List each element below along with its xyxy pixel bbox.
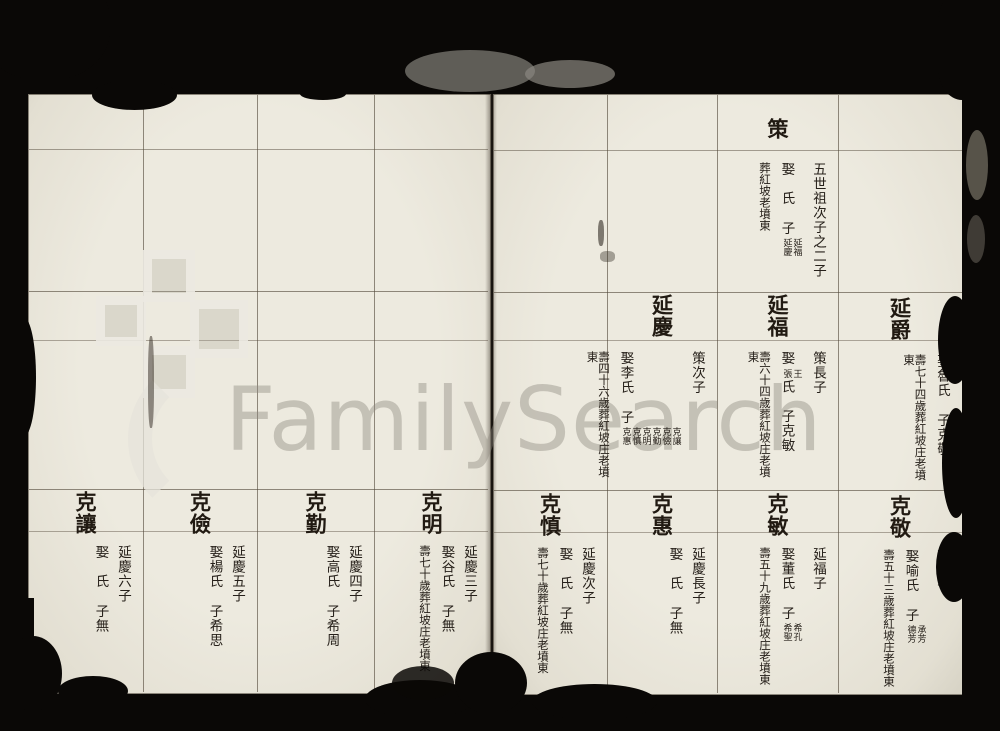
burial-text: 壽五十九歲葬紅坡庄老墳東	[759, 547, 771, 688]
marriage-sons-text: 娶 氏子延福延慶	[779, 162, 802, 289]
edge-blot	[938, 296, 972, 384]
marriage-sons-text: 娶喻氏子承芳德芳	[903, 549, 926, 688]
sons-note: 延福延慶	[782, 238, 802, 258]
marriage-head: 娶	[779, 351, 795, 366]
entry-kehui-name: 克惠	[607, 493, 717, 537]
marriage-head: 娶 氏	[557, 547, 573, 591]
genealogy-book-scan: FamilySearch 策 五世祖次子之二子 娶 氏子延福延慶 葬紅坡老墳東 …	[0, 0, 1000, 731]
sons-note: 克讓克儉克勤克明克慎克惠	[621, 427, 681, 447]
marriage-tail: 氏	[779, 380, 795, 395]
marriage-sons-text: 娶董氏子希孔希聖	[779, 547, 802, 688]
marriage-head: 娶李氏	[618, 351, 634, 395]
ink-blot	[392, 666, 454, 700]
marriage-head: 娶 氏	[93, 545, 109, 589]
burial-text: 壽七十歲葬紅坡庄老墳東	[537, 547, 549, 688]
burial-text: 葬紅坡老墳東	[759, 162, 771, 289]
grid-line	[494, 150, 962, 151]
entry-keshen-name: 克慎	[493, 493, 607, 537]
entry-yanqing-name: 延慶	[607, 293, 717, 339]
entry-yanqing-detail: 策次子 娶李氏子克讓克儉克勤克明克慎克惠 壽四十六歲葬紅坡庄老墳東	[607, 341, 717, 488]
entry-ce-name: 策	[717, 108, 838, 150]
fold-mark	[600, 251, 615, 262]
marriage-head: 娶董氏	[779, 547, 795, 591]
edge-blot	[942, 408, 970, 518]
marriage-head: 娶 氏	[667, 547, 683, 591]
marriage-sons-text: 娶王張氏子克敏	[779, 351, 802, 486]
marriage-sons-text: 娶谷氏子無	[439, 545, 453, 688]
sons-label: 子希思	[207, 604, 223, 648]
entry-yanfu-detail: 策長子 娶王張氏子克敏 壽六十四歲葬紅坡庄老墳東	[717, 341, 838, 488]
edge-blot	[936, 532, 972, 602]
sons-label: 子	[903, 608, 919, 623]
fold-mark	[598, 220, 604, 246]
marriage-sons-text: 娶 氏子無	[667, 547, 681, 688]
gutter-blot	[455, 652, 527, 714]
marriage-head: 娶高氏	[324, 545, 340, 589]
burial-text: 壽五十三歲葬紅坡庄老墳東	[883, 549, 895, 688]
entry-kejian-detail: 延慶五子 娶楊氏子希思	[143, 535, 257, 690]
entry-kerang-name: 克讓	[28, 491, 143, 535]
grid-line	[29, 340, 488, 341]
entry-keqin-name: 克勤	[257, 491, 374, 535]
sons-label: 子	[779, 221, 795, 236]
grid-line	[29, 149, 488, 150]
entry-ce-detail: 五世祖次子之二子 娶 氏子延福延慶 葬紅坡老墳東	[717, 152, 838, 291]
grid-line	[29, 291, 488, 292]
sons-note: 希孔希聖	[782, 623, 802, 643]
entry-kehui-detail: 延慶長子 娶 氏子無	[607, 537, 717, 690]
torn-edge	[300, 88, 346, 100]
spine-mark	[967, 215, 985, 263]
marriage-sons-text: 娶高氏子希周	[324, 545, 338, 688]
burial-text: 壽六十四歲葬紅坡庄老墳東	[747, 351, 770, 486]
torn-edge	[58, 676, 128, 706]
sons-label: 子	[779, 606, 795, 621]
corner-shadow	[0, 0, 110, 80]
sons-note: 承芳德芳	[906, 625, 926, 645]
sons-label: 子	[618, 410, 634, 425]
entry-keqin-detail: 延慶四子 娶高氏子希周	[257, 535, 374, 690]
marriage-head: 娶 氏	[779, 162, 795, 206]
edge-blot	[12, 318, 36, 436]
entry-kemin-name: 克敏	[717, 493, 838, 537]
marriage-sons-text: 娶 氏子無	[557, 547, 571, 688]
relation-text: 延慶六子	[116, 545, 130, 688]
grid-line	[29, 489, 488, 490]
relation-text: 延慶次子	[580, 547, 594, 688]
spine-mark	[966, 130, 988, 200]
relation-text: 延福子	[811, 547, 825, 688]
marriage-sons-text: 娶楊氏子希思	[207, 545, 221, 688]
entry-kemin-detail: 延福子 娶董氏子希孔希聖 壽五十九歲葬紅坡庄老墳東	[717, 537, 838, 690]
corner-shadow	[4, 636, 62, 711]
sons-label: 子無	[667, 606, 683, 635]
wives-note: 王張	[782, 369, 802, 380]
smudge	[525, 60, 615, 88]
relation-text: 延慶長子	[690, 547, 704, 688]
burial-text: 壽四十六歲葬紅坡庄老墳東	[586, 351, 609, 486]
entry-keming-name: 克明	[374, 491, 489, 535]
marriage-head: 娶楊氏	[207, 545, 223, 589]
sons-label: 子希周	[324, 604, 340, 648]
marriage-head: 娶喻氏	[903, 549, 919, 593]
relation-text: 策次子	[690, 351, 704, 486]
burial-text: 壽七十四歲葬紅坡庄老墳東	[903, 354, 926, 489]
smudge	[405, 50, 535, 92]
ink-streak	[148, 336, 154, 428]
marriage-head: 娶谷氏	[439, 545, 455, 589]
relation-text: 五世祖次子之二子	[811, 162, 825, 289]
relation-text: 延慶五子	[230, 545, 244, 688]
marriage-sons-text: 娶 氏子無	[93, 545, 107, 688]
sons-label: 子無	[557, 606, 573, 635]
torn-edge	[92, 80, 177, 110]
entry-yanfu-name: 延福	[717, 293, 838, 339]
relation-text: 延慶四子	[347, 545, 361, 688]
sons-label: 子無	[439, 604, 455, 633]
sons-label: 子克敏	[779, 409, 795, 453]
relation-text: 策長子	[811, 351, 825, 486]
torn-edge	[532, 684, 657, 720]
entry-kejian-name: 克儉	[143, 491, 257, 535]
marriage-sons-text: 娶李氏子克讓克儉克勤克明克慎克惠	[618, 351, 681, 486]
sons-label: 子無	[93, 604, 109, 633]
entry-kejing-name: 克敬	[838, 495, 962, 539]
